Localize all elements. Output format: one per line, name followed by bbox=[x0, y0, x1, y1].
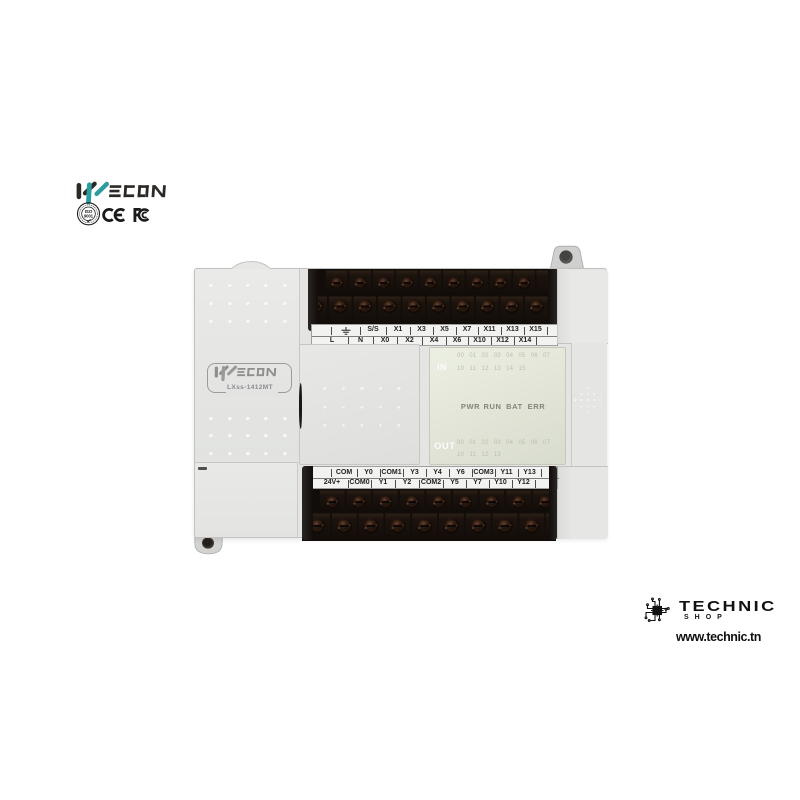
svg-text:9001: 9001 bbox=[84, 213, 94, 218]
